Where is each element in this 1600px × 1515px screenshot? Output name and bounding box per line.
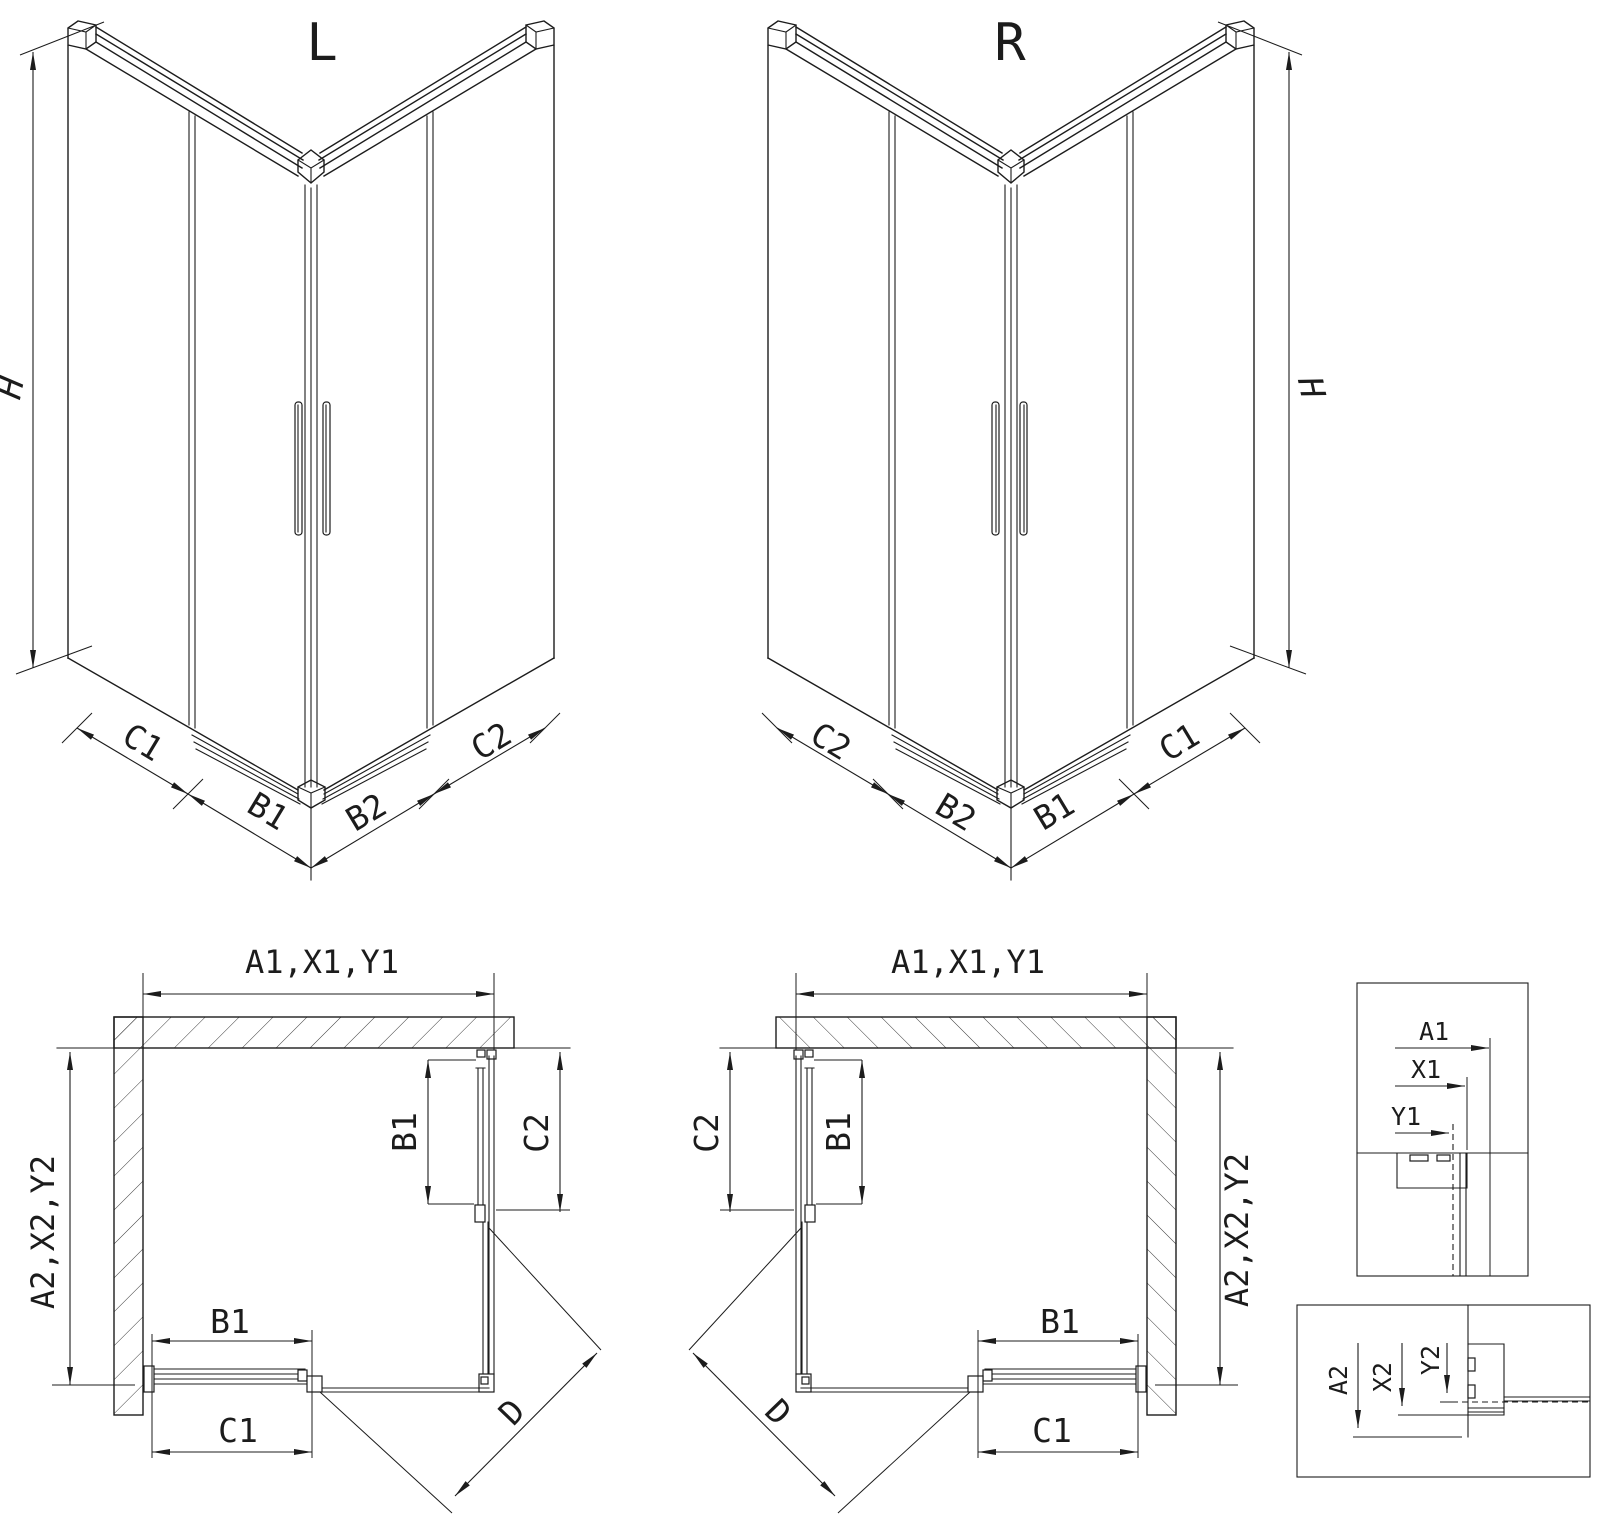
detail-label-a2: A2 bbox=[1324, 1365, 1353, 1395]
dim-label-c1-bottom: C1 bbox=[1032, 1411, 1072, 1450]
dim-label-d: D bbox=[757, 1391, 799, 1432]
detail-label-x1: X1 bbox=[1411, 1055, 1441, 1084]
dim-label-d: D bbox=[491, 1391, 533, 1432]
detail-label-x2: X2 bbox=[1368, 1362, 1397, 1392]
variant-label-left: L bbox=[306, 13, 337, 73]
dim-label-c2-side: C2 bbox=[687, 1113, 726, 1153]
glass-section bbox=[1468, 1397, 1589, 1412]
drawing-canvas: L H C1 B1 B2 C2 R H C2 B2 B1 C1 A1,X1,Y1… bbox=[0, 0, 1600, 1515]
dim-label-c2: C2 bbox=[464, 714, 518, 768]
technical-drawing-sheet: L H C1 B1 B2 C2 R H C2 B2 B1 C1 A1,X1,Y1… bbox=[0, 0, 1600, 1515]
plan-left-view: A1,X1,Y1 A2,X2,Y2 B1 C2 B1 C1 D bbox=[24, 943, 601, 1513]
elevation-left-view: L H C1 B1 B2 C2 bbox=[0, 13, 560, 880]
dim-label-b1-bottom: B1 bbox=[1040, 1302, 1080, 1341]
dim-label-b1-bottom: B1 bbox=[210, 1302, 250, 1341]
variant-label-right: R bbox=[994, 13, 1026, 73]
plan-right-view: A1,X1,Y1 A2,X2,Y2 C2 B1 B1 C1 D bbox=[687, 943, 1256, 1513]
detail-box-top: A1 X1 Y1 bbox=[1357, 983, 1528, 1276]
detail-label-y2: Y2 bbox=[1416, 1345, 1445, 1375]
dim-label-a2x2y2: A2,X2,Y2 bbox=[24, 1155, 62, 1309]
dim-label-h: H bbox=[0, 373, 33, 403]
profile-section bbox=[1468, 1344, 1504, 1415]
dim-label-b2: B2 bbox=[929, 785, 983, 839]
detail-box-bottom: A2 X2 Y2 bbox=[1297, 1305, 1590, 1477]
dim-label-c1: C1 bbox=[1152, 715, 1206, 769]
dim-label-c1: C1 bbox=[116, 715, 170, 769]
dim-label-c1-bottom: C1 bbox=[218, 1411, 258, 1450]
detail-label-a1: A1 bbox=[1419, 1017, 1449, 1046]
dim-label-b1-side: B1 bbox=[819, 1112, 858, 1152]
dim-label-a1x1y1: A1,X1,Y1 bbox=[245, 943, 399, 981]
glass-section bbox=[1460, 1153, 1466, 1276]
elevation-right-view: R H C2 B2 B1 C1 bbox=[762, 13, 1333, 880]
dim-label-a1x1y1: A1,X1,Y1 bbox=[891, 943, 1045, 981]
dim-label-b2: B2 bbox=[339, 785, 393, 839]
dim-label-c2-side: C2 bbox=[517, 1113, 556, 1153]
dim-label-a2x2y2: A2,X2,Y2 bbox=[1218, 1153, 1256, 1307]
profile-section bbox=[1397, 1153, 1467, 1188]
dim-label-h: H bbox=[1289, 373, 1333, 403]
dim-label-c2: C2 bbox=[804, 714, 858, 768]
detail-label-y1: Y1 bbox=[1391, 1102, 1421, 1131]
dim-label-b1-side: B1 bbox=[385, 1112, 424, 1152]
